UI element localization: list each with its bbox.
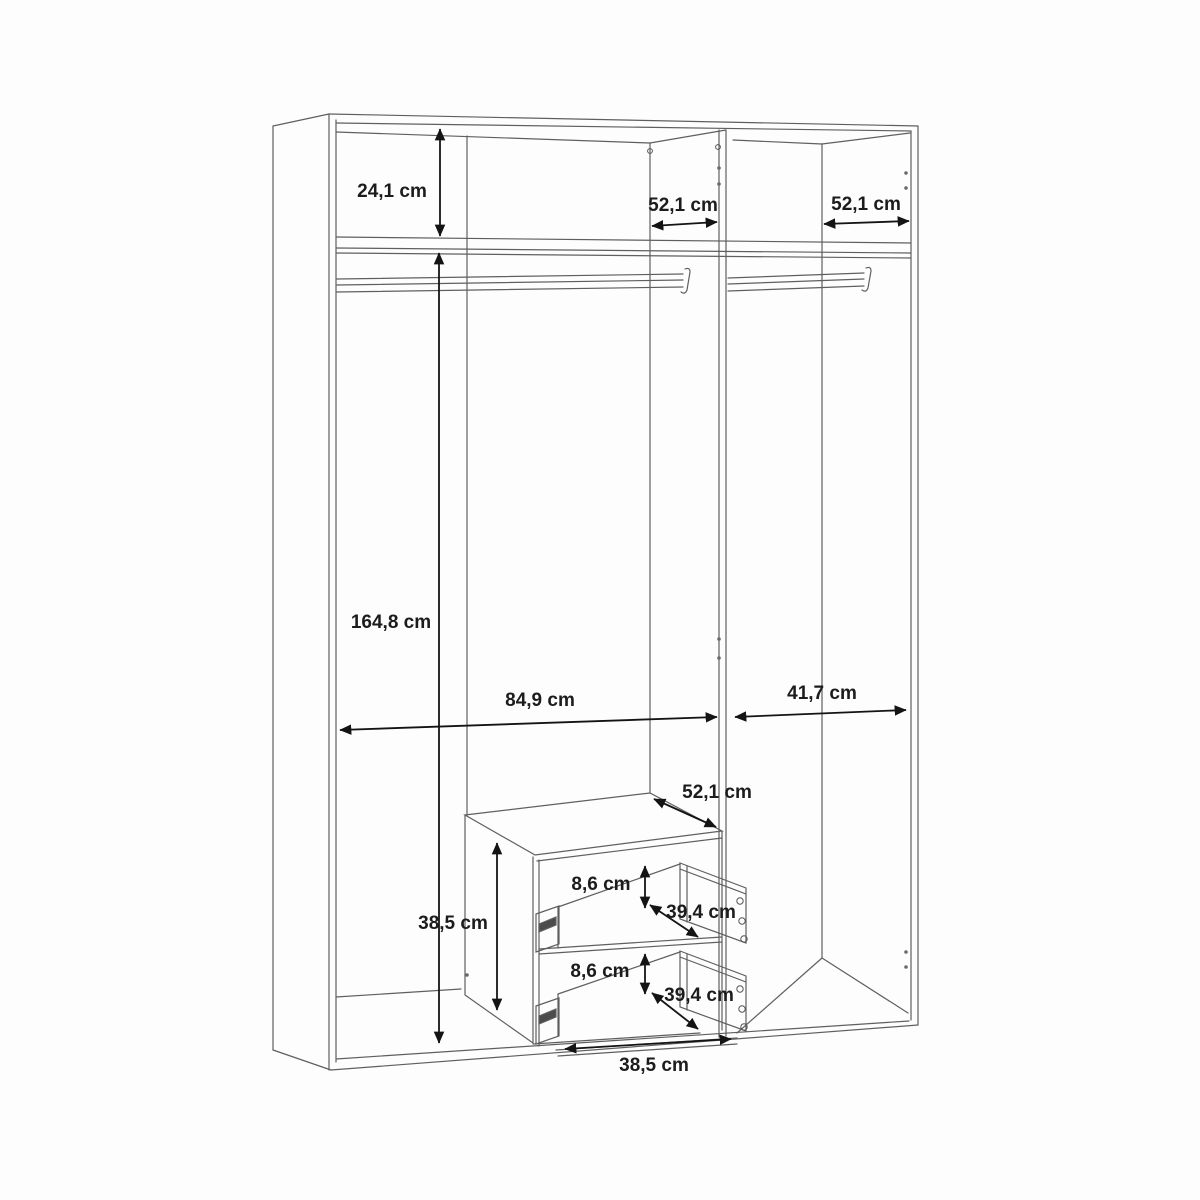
dim-label-drawer-depth-top: 39,4 cm — [666, 902, 736, 923]
pin-hole — [717, 656, 721, 660]
shelf-top-line — [336, 237, 911, 243]
dim-label-drawer-depth-bot: 39,4 cm — [664, 985, 734, 1006]
dim-label-right-section-width: 41,7 cm — [787, 683, 857, 704]
hanging-rail-left — [337, 268, 690, 293]
floor-back-edge-right — [822, 958, 908, 1013]
partition-top-depth-edge — [650, 130, 726, 143]
shelf-bottom-line-2 — [336, 253, 911, 258]
pin-hole — [717, 166, 721, 170]
rail-left-hook — [681, 268, 690, 293]
floor-back-edge-left — [336, 989, 461, 997]
drawer-top-front-top-line — [680, 869, 746, 894]
dim-line-upper-depth-right — [824, 221, 909, 224]
drawer-unit-top-thickness — [537, 838, 722, 861]
back-top-corner-right — [822, 133, 910, 144]
pin-hole — [717, 182, 721, 186]
dim-label-drawer-unit-depth: 52,1 cm — [682, 782, 752, 803]
pin-hole — [904, 965, 908, 969]
dim-label-upper-depth-right: 52,1 cm — [831, 194, 901, 215]
drawer-unit-mid-shelf-2 — [539, 942, 722, 954]
pin-hole — [904, 186, 908, 190]
dim-line-drawer-unit-depth — [654, 799, 716, 827]
rail-right-line-1 — [728, 273, 864, 278]
shelf-bottom-line-1 — [336, 248, 911, 253]
back-top-edge-right — [733, 140, 822, 144]
dim-label-drawer-unit-height: 38,5 cm — [418, 913, 488, 934]
rail-left-line-1 — [337, 274, 683, 279]
top-shelf — [336, 237, 911, 258]
wardrobe-dimension-diagram: 24,1 cm 52,1 cm 52,1 cm 164,8 cm 84,9 cm… — [0, 0, 1200, 1200]
cam-fitting — [737, 898, 743, 904]
rail-left-line-3 — [337, 287, 683, 292]
drawer-slide-slot — [539, 917, 556, 932]
cam-fitting — [739, 918, 745, 924]
cam-fitting — [737, 986, 743, 992]
bottom-left-depth-edge — [273, 1050, 331, 1070]
dim-label-hanging-space-height: 164,8 cm — [351, 612, 431, 633]
dim-label-drawer-unit-width: 38,5 cm — [619, 1055, 689, 1076]
rail-left-line-2 — [337, 280, 683, 285]
dim-label-drawer-opening-bot: 8,6 cm — [570, 961, 629, 982]
dimension-lines — [340, 129, 909, 1049]
pin-hole — [465, 973, 469, 977]
back-top-edge-left — [336, 132, 650, 143]
pin-holes — [465, 145, 908, 977]
hanging-rail-right — [728, 267, 871, 291]
dim-label-drawer-opening-top: 8,6 cm — [571, 874, 630, 895]
dimension-labels: 24,1 cm 52,1 cm 52,1 cm 164,8 cm 84,9 cm… — [351, 181, 901, 1076]
dim-line-right-section-width — [735, 710, 906, 717]
dim-label-left-section-width: 84,9 cm — [505, 690, 575, 711]
pin-hole — [904, 950, 908, 954]
diagram-svg: 24,1 cm 52,1 cm 52,1 cm 164,8 cm 84,9 cm… — [0, 0, 1200, 1200]
cam-fitting — [716, 145, 721, 150]
drawer-unit-mid-shelf-1 — [539, 937, 722, 949]
dim-line-left-section-width — [340, 717, 717, 730]
floor-partition-edge-right — [737, 958, 822, 1033]
rail-right-line-3 — [728, 286, 864, 291]
dim-label-top-shelf-height: 24,1 cm — [357, 181, 427, 202]
drawer-slide-slot — [539, 1009, 556, 1024]
pin-hole — [904, 171, 908, 175]
middle-partition — [650, 130, 726, 1037]
bottom-edge-inner — [336, 1021, 909, 1059]
rail-right-line-2 — [728, 279, 864, 284]
dim-line-upper-depth-left — [652, 222, 717, 226]
top-left-depth-edge — [273, 114, 329, 126]
dim-label-upper-depth-left: 52,1 cm — [648, 195, 718, 216]
drawer-bottom-front-top-line — [680, 957, 746, 982]
cam-fitting — [739, 1006, 745, 1012]
pin-hole — [717, 637, 721, 641]
